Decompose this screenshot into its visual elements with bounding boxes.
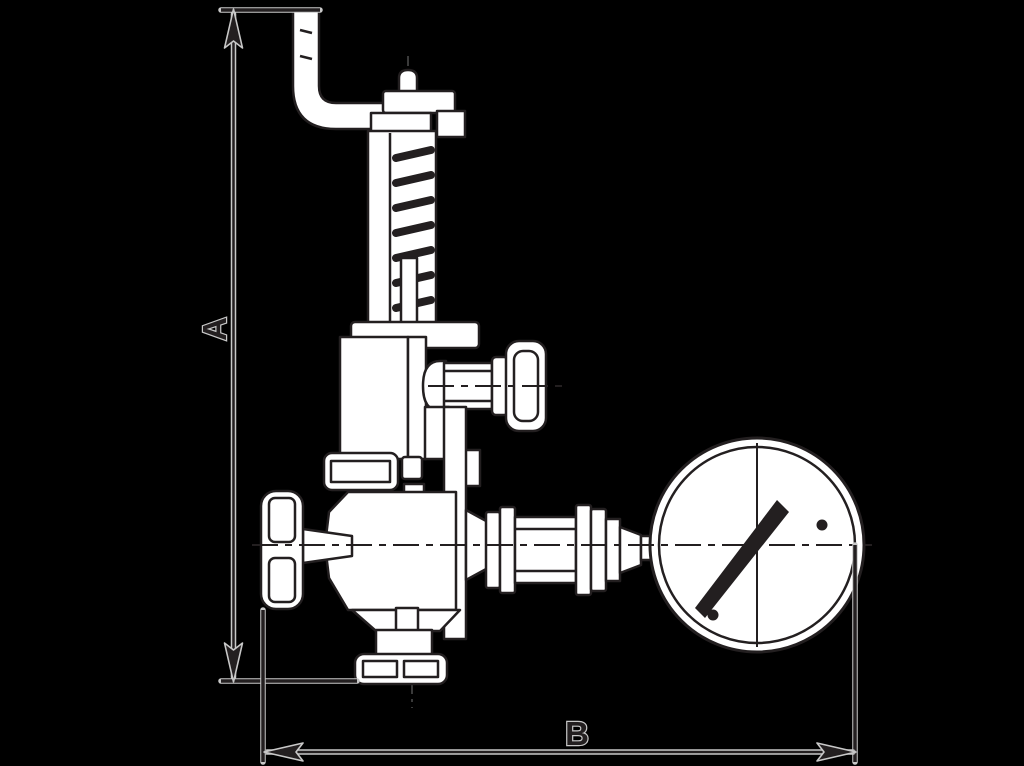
gauge-screw-lower: [708, 610, 719, 621]
outlet-flange: [355, 654, 447, 684]
gauge-screw-upper: [817, 520, 828, 531]
outlet-neck: [376, 630, 432, 656]
spring-housing: [351, 131, 479, 348]
spindle: [401, 258, 417, 326]
top-knob: [399, 70, 417, 92]
dimension-a-label: A: [196, 317, 233, 341]
outlet: [352, 608, 460, 684]
valve-technical-drawing: A B: [0, 0, 1024, 766]
dimension-b-label: B: [565, 715, 589, 752]
drawing-canvas: A B: [0, 0, 1024, 766]
gauge-connection: [486, 505, 657, 595]
upper-body: [340, 337, 426, 459]
fulcrum-block: [383, 91, 455, 113]
bonnet-top-assembly: [371, 70, 465, 137]
union-nut: [576, 505, 591, 595]
